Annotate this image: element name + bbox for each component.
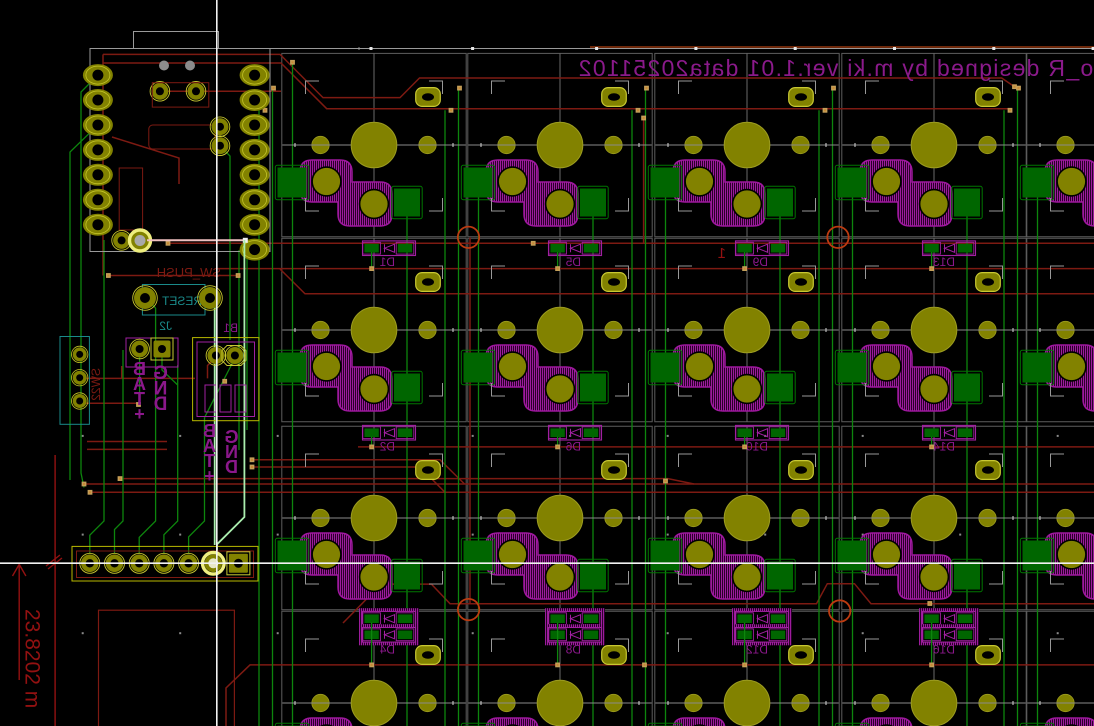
svg-text:D14: D14 bbox=[933, 440, 955, 454]
svg-text:D: D bbox=[154, 394, 168, 415]
svg-text:+: + bbox=[134, 404, 145, 424]
svg-text:1: 1 bbox=[718, 245, 726, 262]
svg-text:+: + bbox=[204, 466, 215, 486]
svg-text:D5: D5 bbox=[565, 255, 581, 269]
svg-text:D9: D9 bbox=[752, 255, 768, 269]
svg-text:macro_R designed by m.ki ver.1: macro_R designed by m.ki ver.1.01 data20… bbox=[577, 55, 1094, 81]
svg-text:D13: D13 bbox=[933, 255, 955, 269]
svg-text:SW22: SW22 bbox=[89, 368, 103, 401]
svg-text:D2: D2 bbox=[379, 440, 395, 454]
svg-text:D6: D6 bbox=[565, 440, 581, 454]
svg-text:RESET: RESET bbox=[161, 294, 202, 308]
svg-text:J2: J2 bbox=[159, 319, 172, 333]
svg-text:D1: D1 bbox=[379, 255, 395, 269]
svg-text:D10: D10 bbox=[746, 440, 768, 454]
svg-text:SW_PUSH: SW_PUSH bbox=[157, 265, 221, 280]
svg-text:B1: B1 bbox=[223, 321, 238, 335]
svg-text:D4: D4 bbox=[379, 643, 395, 657]
svg-text:23.8202 m: 23.8202 m bbox=[21, 609, 44, 708]
svg-text:D16: D16 bbox=[933, 643, 955, 657]
svg-text:D: D bbox=[225, 457, 238, 477]
svg-text:D12: D12 bbox=[746, 643, 768, 657]
svg-text:D8: D8 bbox=[565, 643, 581, 657]
